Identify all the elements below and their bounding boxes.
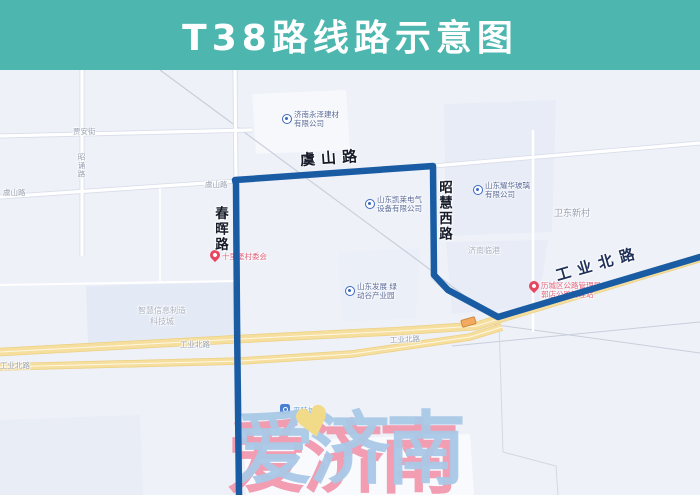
header-banner: T38路线路示意图 [0,0,700,70]
road-label-zhaohui-west: 昭慧西路 [434,180,454,242]
route-map-image: 贾安街 昭诵路 虞山路 虞山路 工业北路 工业北路 工业北路 卫东新村 济南临港… [0,0,700,495]
road-label-yushan: 虞山路 [299,145,363,170]
page-title: T38路线路示意图 [182,9,518,61]
major-label-layer: 虞山路 春晖路 昭慧西路 工业北路 [0,0,700,495]
road-label-chunhui: 春晖路 [210,206,230,253]
road-label-gongye-north: 工业北路 [553,241,643,285]
